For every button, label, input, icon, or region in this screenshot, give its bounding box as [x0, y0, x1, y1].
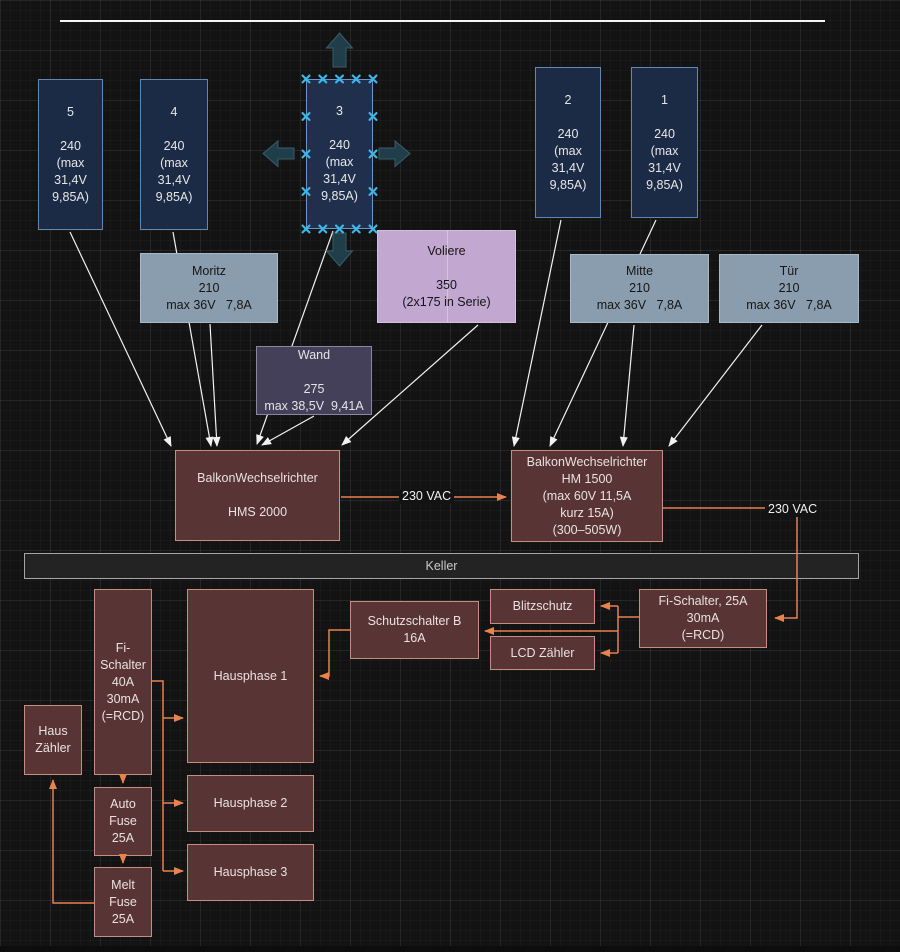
- edge-label-230vac-left[interactable]: 230 VAC: [399, 489, 454, 504]
- node-haus-zaehler[interactable]: Haus Zähler: [24, 705, 82, 775]
- node-melt-fuse[interactable]: Melt Fuse 25A: [94, 867, 152, 937]
- node-inverter-hm1500[interactable]: BalkonWechselrichter HM 1500 (max 60V 11…: [511, 450, 663, 542]
- diagram-canvas[interactable]: 5 240 (max 31,4V 9,85A) 4 240 (max 31,4V…: [0, 0, 900, 952]
- node-panel-2[interactable]: 2 240 (max 31,4V 9,85A): [535, 67, 601, 218]
- node-panel-3-selected[interactable]: 3 240 (max 31,4V 9,85A): [306, 79, 373, 229]
- node-blitzschutz[interactable]: Blitzschutz: [490, 589, 595, 624]
- edge-label-230vac-right[interactable]: 230 VAC: [765, 502, 820, 517]
- node-panel-5[interactable]: 5 240 (max 31,4V 9,85A): [38, 79, 103, 230]
- node-hausphase-1[interactable]: Hausphase 1: [187, 589, 314, 763]
- node-schutzschalter-b[interactable]: Schutzschalter B 16A: [350, 601, 479, 659]
- keller-bar[interactable]: Keller: [24, 553, 859, 579]
- node-panel-1[interactable]: 1 240 (max 31,4V 9,85A): [631, 67, 698, 218]
- node-fi-schalter-25a[interactable]: Fi-Schalter, 25A 30mA (=RCD): [639, 589, 767, 648]
- canvas-bottom-strip: [0, 946, 900, 952]
- node-lcd-zaehler[interactable]: LCD Zähler: [490, 636, 595, 670]
- node-fi-schalter-40a[interactable]: Fi- Schalter 40A 30mA (=RCD): [94, 589, 152, 775]
- node-hausphase-3[interactable]: Hausphase 3: [187, 844, 314, 901]
- node-string-moritz[interactable]: Moritz 210 max 36V 7,8A: [140, 253, 278, 323]
- node-string-voliere[interactable]: Voliere 350 (2x175 in Serie): [377, 230, 516, 323]
- node-hausphase-2[interactable]: Hausphase 2: [187, 775, 314, 832]
- node-auto-fuse[interactable]: Auto Fuse 25A: [94, 787, 152, 856]
- node-string-mitte[interactable]: Mitte 210 max 36V 7,8A: [570, 254, 709, 323]
- node-string-tuer[interactable]: Tür 210 max 36V 7,8A: [719, 254, 859, 323]
- node-string-wand[interactable]: Wand 275 max 38,5V 9,41A: [256, 346, 372, 415]
- node-inverter-hms2000[interactable]: BalkonWechselrichter HMS 2000: [175, 450, 340, 541]
- node-panel-4[interactable]: 4 240 (max 31,4V 9,85A): [140, 79, 208, 230]
